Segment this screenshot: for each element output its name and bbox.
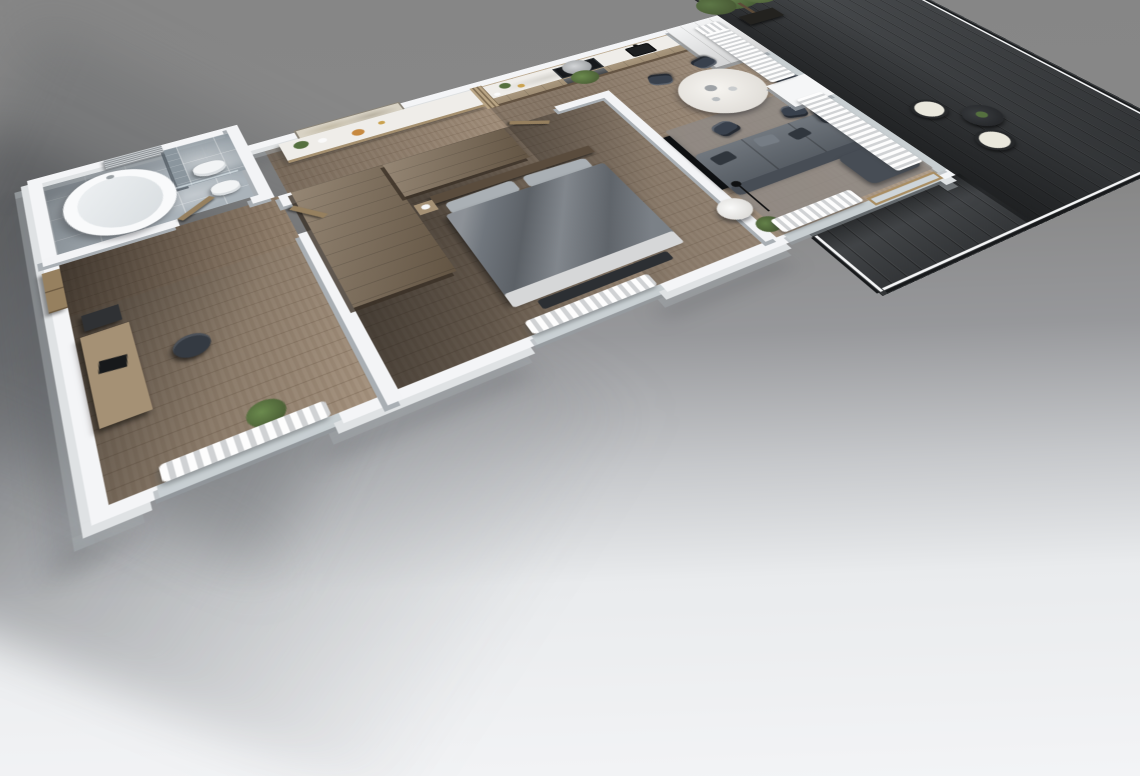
render-stage [0,0,1140,776]
hall-door-leaf [509,120,549,124]
